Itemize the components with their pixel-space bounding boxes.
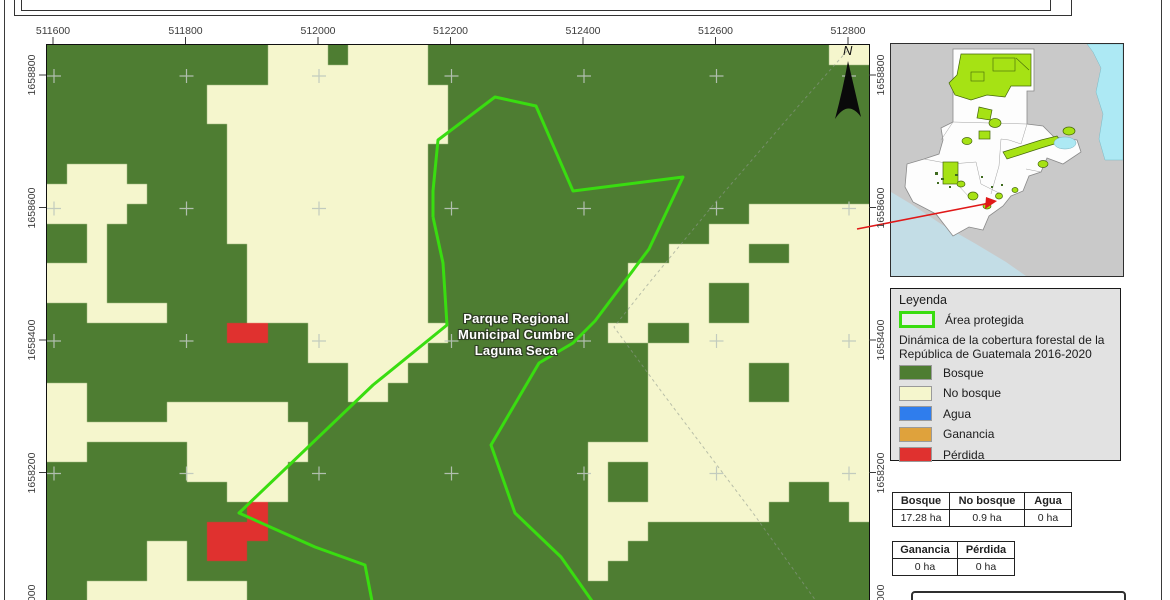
layout-page: Parque Regional Municipal Cumbre Laguna … [0, 0, 1170, 600]
north-label: N [843, 43, 852, 58]
page-border-left [4, 0, 5, 600]
legend-swatch-icon [899, 427, 932, 442]
val-agua: 0 ha [1025, 510, 1072, 527]
y-axis-label: 1658200 [26, 452, 38, 493]
y-axis-label: 1658000 [875, 585, 887, 600]
y-axis-label: 1658000 [26, 585, 38, 600]
y-axis-label: 1658800 [875, 55, 887, 96]
val-perdida: 0 ha [958, 559, 1015, 576]
col-ganancia: Ganancia [893, 542, 958, 559]
legend-item-pérdida: Pérdida [899, 447, 984, 462]
change-stats-table: Ganancia Pérdida 0 ha 0 ha [892, 541, 1015, 576]
area-label-line2: Municipal Cumbre [458, 327, 574, 343]
y-axis-label: 1658400 [875, 320, 887, 361]
legend-item-no-bosque: No bosque [899, 386, 1001, 401]
y-axis-label: 1658400 [26, 320, 38, 361]
lake-izabal [1054, 137, 1076, 149]
legend-item-label: Bosque [943, 366, 984, 380]
legend-swatch-icon [899, 365, 932, 380]
legend-protected-row: Área protegida [899, 311, 1024, 328]
legend-item-agua: Agua [899, 406, 971, 421]
protected-area-label: Parque Regional Municipal Cumbre Laguna … [458, 311, 574, 359]
legend-item-label: Pérdida [943, 448, 984, 462]
col-bosque: Bosque [893, 493, 950, 510]
title-box-inner [21, 0, 1051, 11]
area-label-line3: Laguna Seca [458, 343, 574, 359]
legend-caption-line1: Dinámica de la cobertura forestal de la [899, 333, 1104, 347]
x-axis-label: 512200 [433, 25, 468, 37]
legend-item-label: No bosque [943, 386, 1001, 400]
x-axis-label: 512600 [698, 25, 733, 37]
legend-swatch-icon [899, 386, 932, 401]
y-axis-label: 1658800 [26, 55, 38, 96]
x-axis-label: 512000 [300, 25, 335, 37]
col-no-bosque: No bosque [950, 493, 1025, 510]
x-axis-label: 512400 [565, 25, 600, 37]
y-axis-label: 1658200 [875, 452, 887, 493]
y-axis-label: 1658600 [26, 187, 38, 228]
legend-item-label: Ganancia [943, 427, 994, 441]
val-no-bosque: 0.9 ha [950, 510, 1025, 527]
x-axis-label: 511800 [168, 25, 202, 37]
col-agua: Agua [1025, 493, 1072, 510]
scale-box [911, 591, 1126, 600]
legend-swatch-icon [899, 406, 932, 421]
guatemala-inset-map [890, 43, 1124, 277]
val-bosque: 17.28 ha [893, 510, 950, 527]
area-label-line1: Parque Regional [458, 311, 574, 327]
main-map: Parque Regional Municipal Cumbre Laguna … [46, 44, 870, 600]
protected-area-swatch-icon [899, 311, 935, 328]
legend-swatch-icon [899, 447, 932, 462]
legend-caption-line2: República de Guatemala 2016-2020 [899, 347, 1104, 361]
legend-caption: Dinámica de la cobertura forestal de la … [899, 333, 1104, 361]
x-axis-label: 512800 [830, 25, 865, 37]
legend-protected-label: Área protegida [945, 313, 1024, 327]
legend-panel: Leyenda Área protegida Dinámica de la co… [890, 288, 1121, 461]
x-axis-label: 511600 [36, 25, 70, 37]
val-ganancia: 0 ha [893, 559, 958, 576]
caribbean-water [1087, 44, 1123, 160]
legend-item-ganancia: Ganancia [899, 427, 994, 442]
legend-item-bosque: Bosque [899, 365, 984, 380]
legend-item-label: Agua [943, 407, 971, 421]
area-stats-table: Bosque No bosque Agua 17.28 ha 0.9 ha 0 … [892, 492, 1072, 527]
page-border-right [1161, 0, 1162, 600]
col-perdida: Pérdida [958, 542, 1015, 559]
y-axis-label: 1658600 [875, 187, 887, 228]
legend-title: Leyenda [899, 293, 947, 307]
